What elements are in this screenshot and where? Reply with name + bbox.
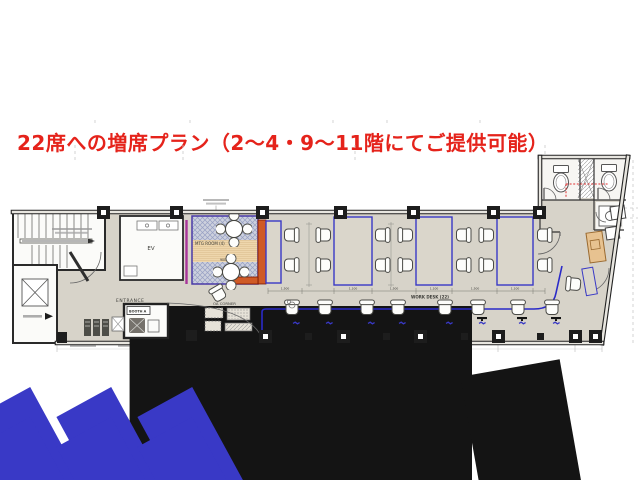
svg-text:1,500: 1,500 bbox=[281, 287, 290, 291]
work-desk-label: WORK DESK (22) bbox=[411, 295, 449, 300]
elevator-room: EV bbox=[120, 216, 183, 280]
svg-text:1,100: 1,100 bbox=[430, 287, 439, 291]
kitchenette-counter bbox=[586, 231, 606, 263]
eps-room bbox=[13, 265, 57, 343]
svg-text:1,500: 1,500 bbox=[471, 287, 480, 291]
top-annotation bbox=[203, 199, 229, 201]
mtg-dim: 900 bbox=[220, 258, 226, 262]
stair-annotation bbox=[52, 228, 92, 230]
svg-text:1,100: 1,100 bbox=[349, 287, 358, 291]
floor-plan: EV MTG ROOM (4) 900 bbox=[0, 0, 640, 480]
oa-corner-label: OA CORNER bbox=[213, 301, 236, 306]
copier-icon bbox=[228, 309, 249, 319]
eps-annotation bbox=[23, 315, 42, 318]
elevator-label: EV bbox=[147, 246, 154, 252]
booth-label: BOOTH A bbox=[129, 310, 147, 314]
svg-text:1,500: 1,500 bbox=[390, 287, 399, 291]
ev-equipment bbox=[137, 221, 157, 230]
screenshot-page: 22席への増席プラン（2～4・9～11階にてご提供可能） bbox=[0, 0, 640, 480]
mtg-room-label: MTG ROOM (4) bbox=[195, 241, 225, 246]
toilet-icon bbox=[602, 165, 617, 192]
svg-text:1,100: 1,100 bbox=[511, 287, 520, 291]
entrance-label: ENTRANCE bbox=[116, 298, 145, 304]
orange-highlight-wall bbox=[258, 220, 266, 284]
